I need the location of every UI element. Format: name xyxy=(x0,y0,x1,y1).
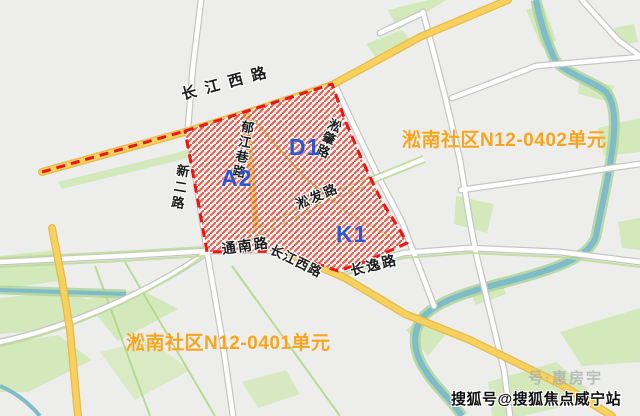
road-label-changjiang-west-south: 长江西路 xyxy=(268,243,324,280)
plot-code-a2: A2 xyxy=(221,165,252,192)
unit-label-n12-0402: 淞南社区N12-0402单元 xyxy=(402,125,606,152)
road-label-xin-er: 新二路 xyxy=(168,163,189,213)
watermark-sohu: 搜狐号@搜狐焦点威宁站 xyxy=(451,388,621,409)
map-labels: 长江西路 新二路 郁江巷路 淞肇路 淞发路 通南路 长江西路 长逸路 A2 D1… xyxy=(0,0,640,416)
road-label-changyi: 长逸路 xyxy=(349,252,399,278)
plot-code-d1: D1 xyxy=(289,134,320,161)
planning-map-image: 长江西路 新二路 郁江巷路 淞肇路 淞发路 通南路 长江西路 长逸路 A2 D1… xyxy=(0,0,640,416)
road-label-changjiang-west-top: 长江西路 xyxy=(180,63,277,103)
road-label-tongnan: 通南路 xyxy=(221,235,271,256)
plot-code-k1: K1 xyxy=(336,221,367,248)
road-label-songfa: 淞发路 xyxy=(294,181,341,211)
unit-label-n12-0401: 淞南社区N12-0401单元 xyxy=(126,328,330,355)
watermark-ghost: 号·惠房宇 xyxy=(528,367,603,388)
